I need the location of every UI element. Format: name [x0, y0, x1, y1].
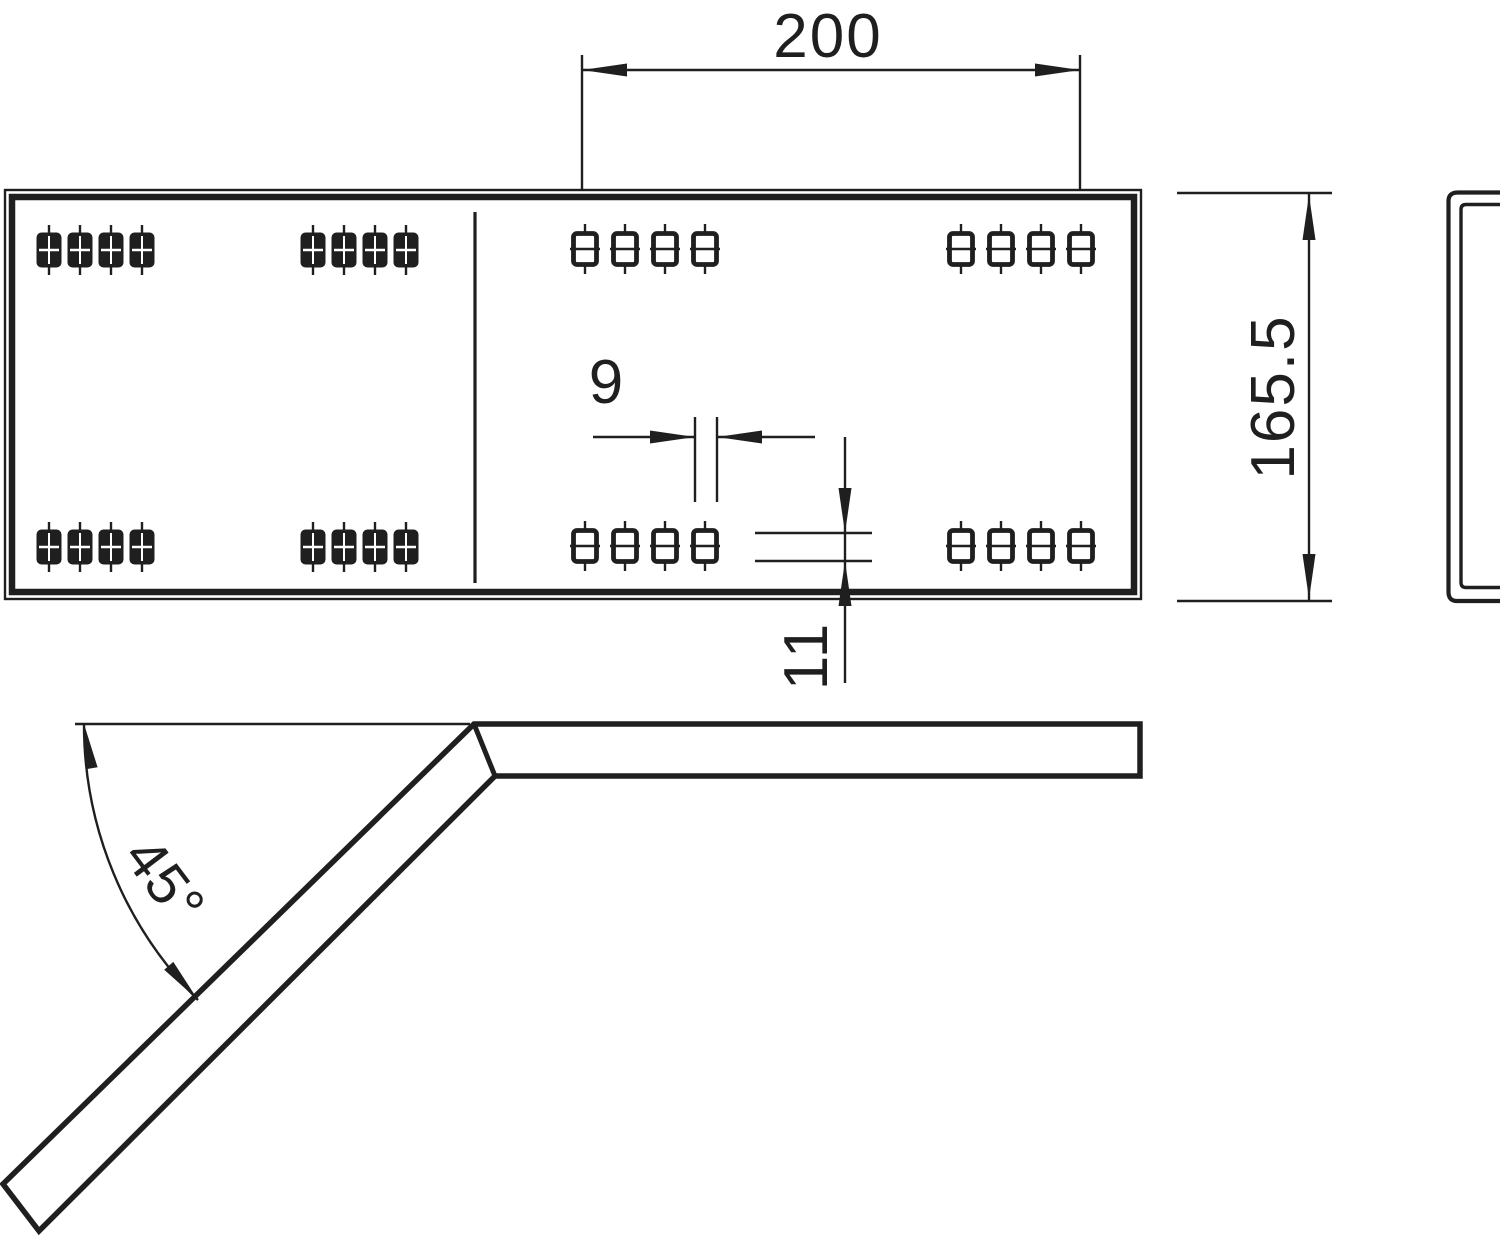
slot-hole [364, 225, 387, 275]
dimension-label-bend-angle: 45° [111, 825, 218, 937]
dimension-plate-height: 165.5 [1177, 193, 1332, 601]
dimension-label-hole-height: 11 [772, 622, 841, 690]
slot-hole [131, 522, 154, 572]
slot-group-bottom-left [38, 522, 154, 572]
arrowhead-up-icon [84, 724, 98, 769]
slot-hole [1026, 224, 1056, 274]
slot-hole [1066, 224, 1096, 274]
slot-hole [364, 522, 387, 572]
slot-hole [1066, 521, 1096, 571]
slot-hole [690, 521, 720, 571]
slot-group-top-middle [302, 225, 418, 275]
slot-hole [946, 521, 976, 571]
arrowhead-up-icon [1303, 195, 1316, 240]
dimension-plate-width: 200 [582, 2, 1080, 190]
slot-hole [69, 522, 92, 572]
dimension-label-hole-width: 9 [589, 348, 625, 417]
dimension-label-plate-height: 165.5 [1239, 314, 1308, 479]
technical-drawing-canvas: 200 165.5 9 11 45° [0, 0, 1500, 1235]
slot-group-bottom-middle [302, 522, 418, 572]
slot-hole [38, 522, 61, 572]
arrowhead-right-icon [650, 431, 695, 444]
arrowhead-down-icon [839, 488, 852, 533]
slot-hole [946, 224, 976, 274]
drawing-svg: 200 165.5 9 11 45° [0, 0, 1500, 1235]
slot-hole [302, 225, 325, 275]
angle-dimension: 45° [84, 724, 218, 1000]
channel-profile-outer [1449, 193, 1500, 602]
slot-hole [38, 225, 61, 275]
slot-hole [690, 224, 720, 274]
slot-group-bottom-center-right [570, 521, 720, 571]
slot-hole [650, 224, 680, 274]
slot-hole [395, 225, 418, 275]
slot-hole [570, 521, 600, 571]
slot-hole [100, 225, 123, 275]
dimension-hole-height: 11 [755, 437, 872, 690]
slot-hole [131, 225, 154, 275]
slot-group-bottom-right [946, 521, 1096, 571]
dimension-hole-width: 9 [589, 348, 815, 502]
slot-hole [100, 522, 123, 572]
plan-view [5, 190, 1141, 599]
slot-hole [302, 522, 325, 572]
arrowhead-right-icon [1035, 64, 1080, 77]
end-view [1449, 193, 1500, 602]
slot-hole [333, 522, 356, 572]
arrowhead-up-icon [839, 561, 852, 606]
side-view: 45° [3, 724, 1140, 1231]
slot-hole [650, 521, 680, 571]
slot-group-top-right [946, 224, 1096, 274]
slot-group-top-left [38, 225, 154, 275]
slot-hole [69, 225, 92, 275]
arrowhead-left-icon [717, 431, 762, 444]
slot-hole [610, 521, 640, 571]
slot-hole [333, 225, 356, 275]
arrowhead-down-right-icon [164, 962, 198, 1000]
slot-hole [610, 224, 640, 274]
slot-group-top-center-right [570, 224, 720, 274]
arrowhead-down-icon [1303, 554, 1316, 599]
slot-hole [986, 521, 1016, 571]
arrowhead-left-icon [582, 64, 627, 77]
channel-profile-inner [1461, 205, 1500, 588]
slot-hole [986, 224, 1016, 274]
slot-hole [395, 522, 418, 572]
slot-hole [570, 224, 600, 274]
dimension-label-plate-width: 200 [773, 2, 882, 71]
slot-hole [1026, 521, 1056, 571]
